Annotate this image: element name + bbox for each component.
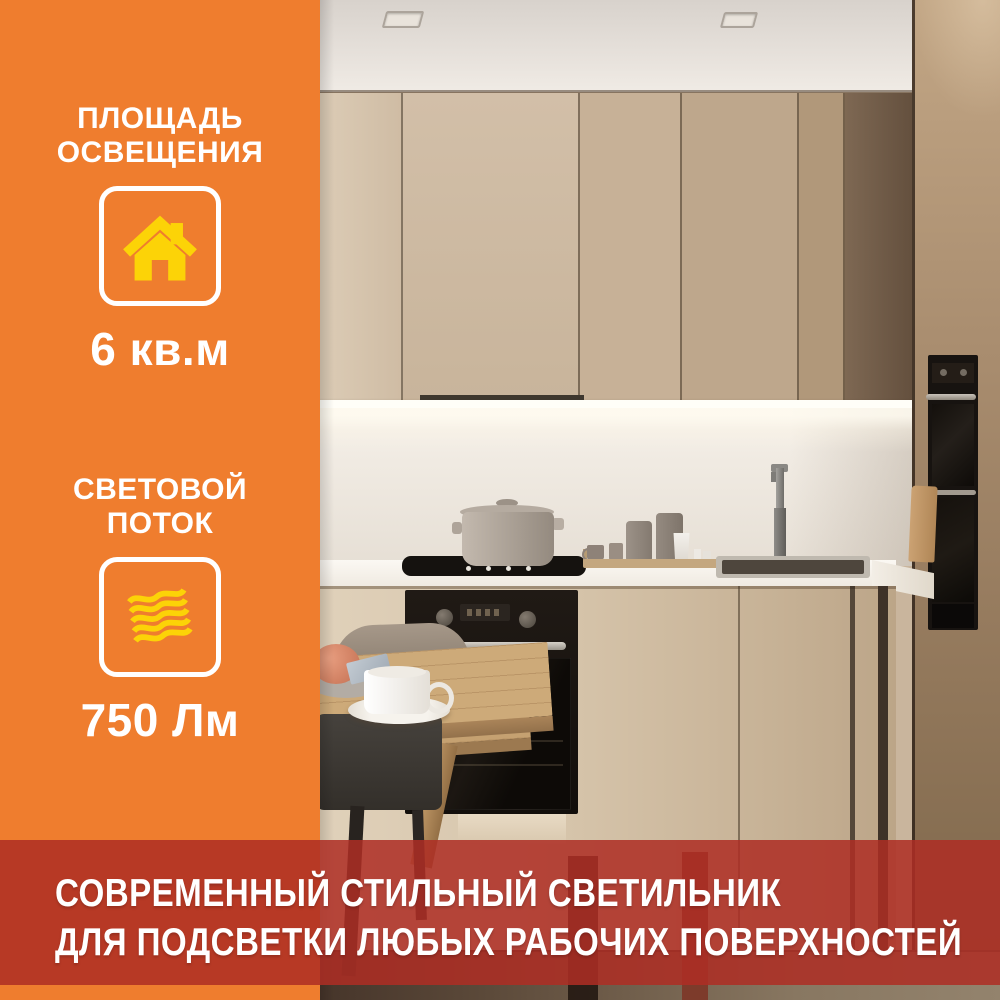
oven-handle	[926, 394, 976, 400]
faucet-stem	[776, 468, 784, 510]
small-cup	[609, 543, 623, 560]
oven-drawer	[932, 604, 974, 628]
cooktop-knob-dot	[466, 566, 471, 571]
cooktop-knob-dot	[506, 566, 511, 571]
cabinet-door	[682, 93, 799, 406]
oven-knob	[940, 369, 947, 376]
stat-label: ПЛОЩАДЬ ОСВЕЩЕНИЯ	[0, 102, 320, 170]
pot-handle	[452, 522, 462, 534]
product-card: ПЛОЩАДЬ ОСВЕЩЕНИЯ 6 кв.м СВЕТОВОЙ ПОТОК	[0, 0, 1000, 1000]
cup-rim	[368, 666, 426, 678]
chair-seat	[320, 714, 442, 810]
white-cup	[672, 533, 691, 560]
banner-line2: ДЛЯ ПОДСВЕТКИ ЛЮБЫХ РАБОЧИХ ПОВЕРХНОСТЕЙ	[55, 918, 858, 967]
sink-basin	[722, 560, 864, 574]
oven-display-digits	[467, 609, 503, 616]
stat-value: 750 Лм	[0, 693, 320, 747]
stat-label-line1: ПЛОЩАДЬ	[0, 102, 320, 136]
canister	[626, 521, 652, 560]
wall-top-light	[912, 0, 1000, 120]
house-icon	[119, 205, 201, 287]
light-flow-icon	[119, 576, 201, 658]
stat-luminous-flux: СВЕТОВОЙ ПОТОК 750 Лм	[0, 473, 320, 747]
oven-knob	[960, 369, 967, 376]
stat-value: 6 кв.м	[0, 322, 320, 376]
cooktop-knob-dot	[486, 566, 491, 571]
cutting-board	[908, 485, 937, 562]
banner-line1: СОВРЕМЕННЫЙ СТИЛЬНЫЙ СВЕТИЛЬНИК	[55, 869, 858, 918]
pot	[462, 512, 554, 566]
oven-control-panel	[932, 363, 974, 383]
icon-frame	[99, 186, 221, 306]
cabinet-door	[580, 93, 682, 406]
stat-label-line2: ПОТОК	[0, 507, 320, 541]
cooktop-knob-dot	[526, 566, 531, 571]
ceiling-spotlight	[382, 11, 425, 28]
cabinet-door	[403, 93, 580, 406]
stat-label-line2: ОСВЕЩЕНИЯ	[0, 136, 320, 170]
led-strip-light	[320, 400, 912, 452]
cabinet-door-dark	[845, 93, 912, 406]
wooden-tray	[583, 559, 723, 568]
oven-glass	[932, 498, 974, 602]
faucet-body	[774, 508, 786, 562]
oven-knob	[519, 611, 536, 628]
bottom-banner: СОВРЕМЕННЫЙ СТИЛЬНЫЙ СВЕТИЛЬНИК ДЛЯ ПОДС…	[0, 840, 1000, 985]
ceiling-spotlight	[720, 12, 758, 28]
upper-cabinets	[320, 90, 912, 406]
oven-glass	[932, 404, 974, 486]
stat-lighting-area: ПЛОЩАДЬ ОСВЕЩЕНИЯ 6 кв.м	[0, 102, 320, 376]
cabinet-door	[799, 93, 845, 406]
stat-label: СВЕТОВОЙ ПОТОК	[0, 473, 320, 541]
icon-frame	[99, 557, 221, 677]
stat-label-line1: СВЕТОВОЙ	[0, 473, 320, 507]
